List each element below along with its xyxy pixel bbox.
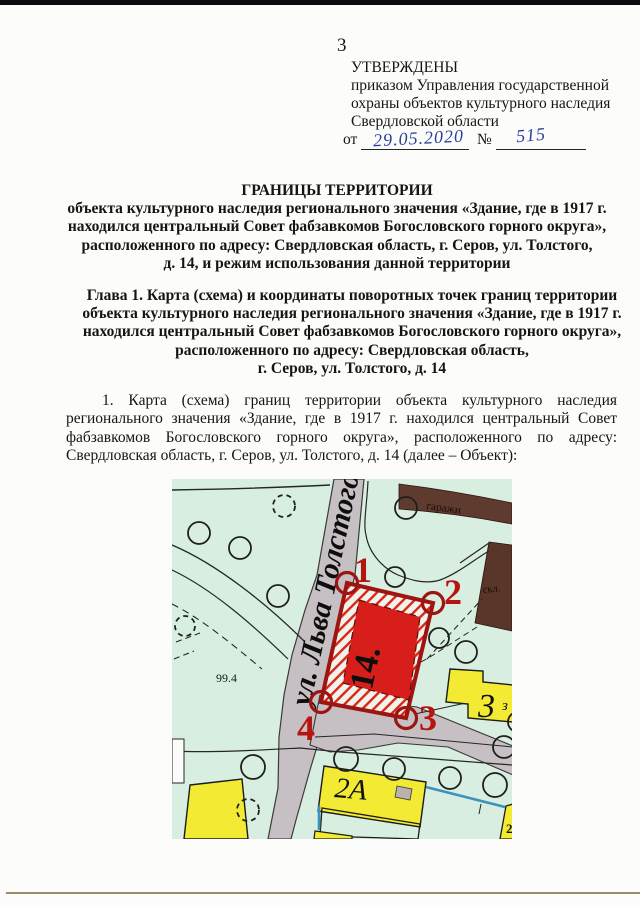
svg-text:скл.: скл.: [482, 583, 501, 596]
svg-text:2: 2: [506, 821, 512, 836]
svg-text:2: 2: [444, 572, 462, 612]
svg-text:3: 3: [419, 698, 437, 738]
svg-text:3: 3: [477, 688, 495, 725]
svg-text:99.4: 99.4: [216, 671, 237, 685]
svg-text:2А: 2А: [333, 772, 368, 807]
svg-text:з: з: [501, 698, 508, 714]
svg-text:4: 4: [297, 708, 315, 748]
svg-text:1: 1: [354, 550, 372, 590]
